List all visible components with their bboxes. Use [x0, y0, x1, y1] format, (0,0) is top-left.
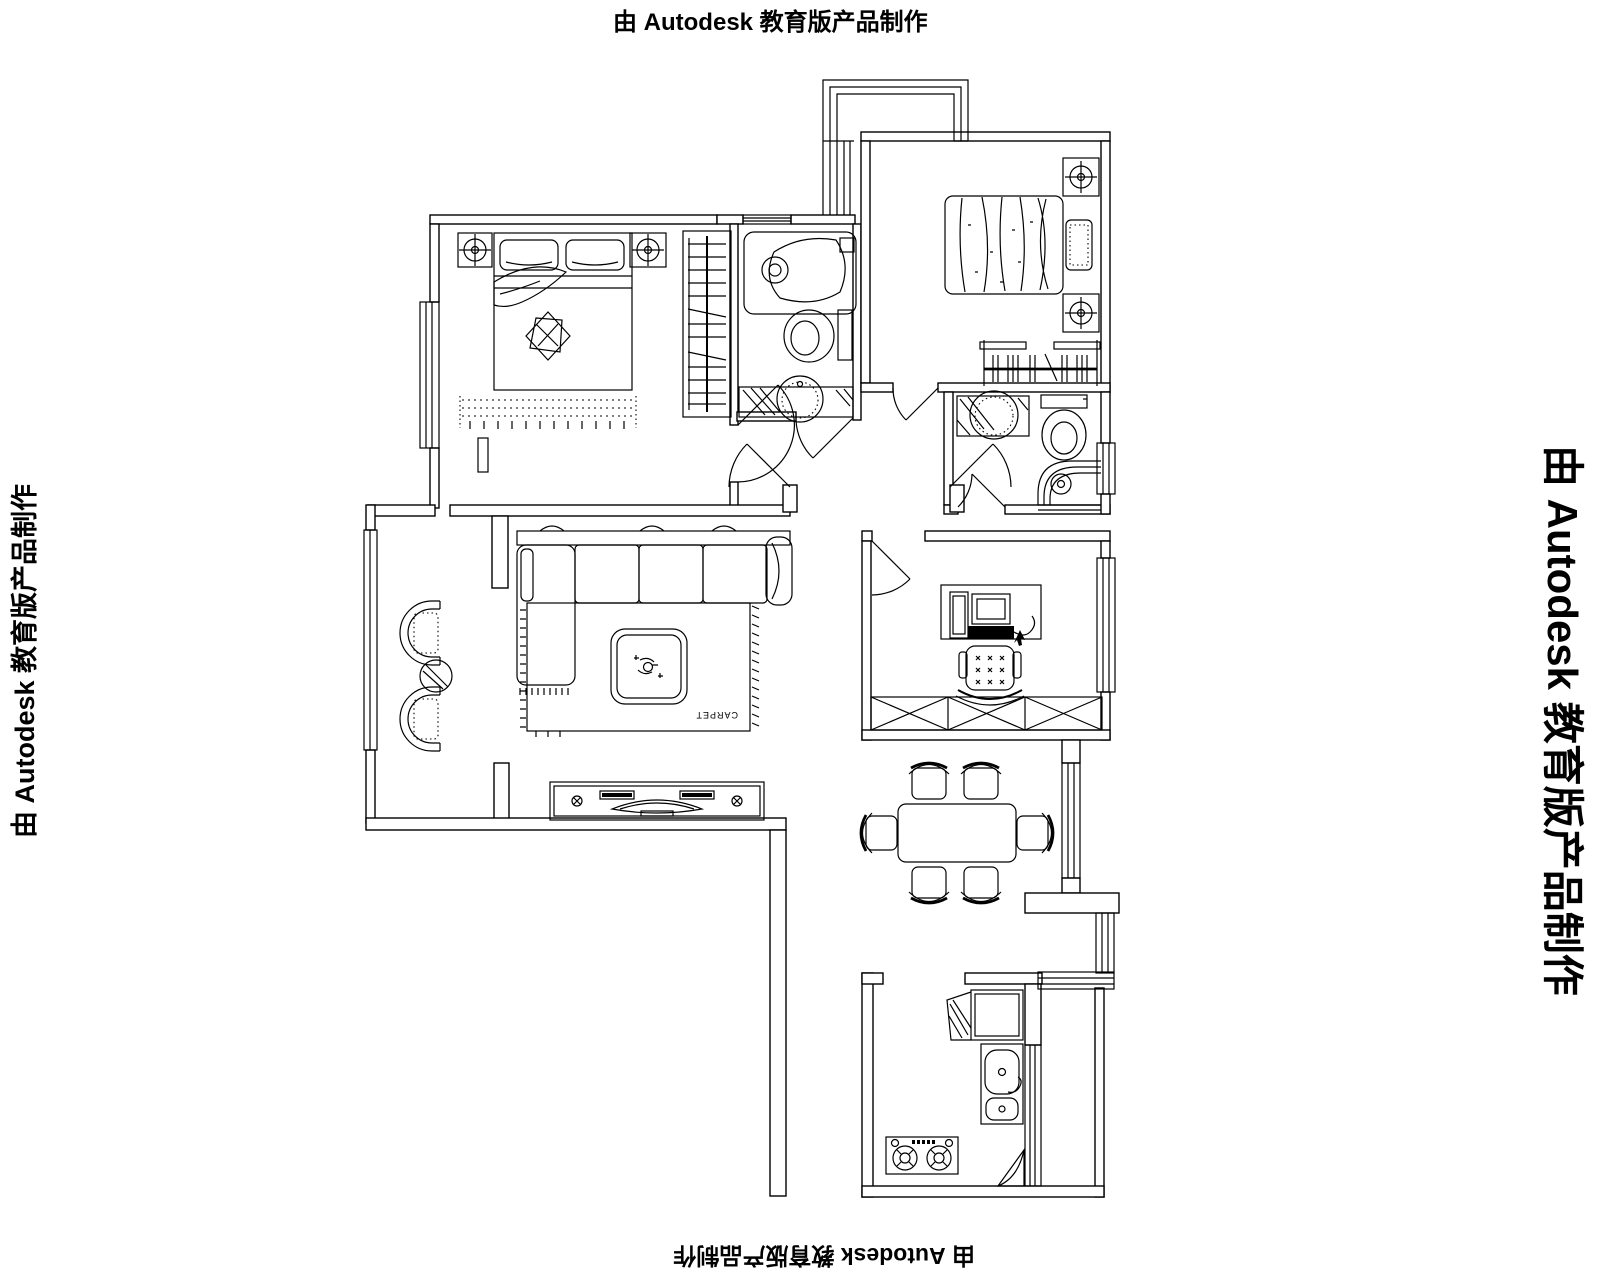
window-kitchen-right	[1025, 1045, 1041, 1186]
watermark-right: 由 Autodesk 教育版产品制作	[1539, 445, 1586, 996]
toilet	[784, 310, 852, 362]
dining-chair	[909, 867, 949, 903]
kitchen	[886, 990, 1023, 1174]
door-bathroom	[796, 418, 853, 458]
dining-chair	[861, 813, 897, 853]
dining-chair	[961, 763, 1001, 799]
sofa	[517, 526, 792, 695]
refrigerator	[947, 990, 1023, 1040]
kitchen-corner-unit	[998, 1150, 1024, 1186]
dining-table	[898, 804, 1016, 862]
dining-chair	[1017, 813, 1053, 853]
basin-counter2	[957, 391, 1029, 439]
door-master-bedroom	[738, 385, 794, 482]
bathtub	[744, 232, 856, 314]
lounge-area	[400, 601, 452, 751]
double-bed	[494, 233, 632, 390]
second-bedroom	[945, 158, 1100, 386]
carpet-label: CARPET	[695, 710, 738, 720]
window-study-right	[1097, 558, 1115, 692]
watermark-top: 由 Autodesk 教育版产品制作	[613, 8, 928, 36]
carpet-rug: CARPET	[520, 603, 759, 737]
door-living-left-leaf	[729, 444, 790, 487]
dining-chair	[961, 867, 1001, 903]
watermark-bottom: 由 Autodesk 教育版产品制作	[673, 1243, 975, 1269]
living-room: CARPET	[400, 526, 792, 820]
wardrobe	[683, 231, 731, 417]
window-ensuite-right	[1097, 443, 1115, 494]
desk	[941, 585, 1041, 646]
watermark-left: 由 Autodesk 教育版产品制作	[9, 484, 40, 838]
dining-room	[861, 763, 1053, 903]
walls	[366, 132, 1119, 1197]
window-bathroom-top	[743, 215, 791, 224]
coffee-table	[611, 629, 687, 704]
master-bedroom	[458, 231, 731, 472]
bedroom-rug	[460, 396, 636, 472]
window-lounge-left	[364, 530, 377, 750]
armchair-top	[400, 601, 440, 665]
study-chair	[956, 646, 1024, 705]
window-master-bedroom	[420, 302, 439, 448]
corner-bathtub	[1038, 461, 1101, 510]
window-dining-right	[1062, 763, 1080, 878]
toilet2	[1041, 395, 1087, 460]
ensuite-bathroom	[957, 391, 1101, 510]
dining-chair	[909, 763, 949, 799]
armchair-bottom	[400, 687, 440, 751]
window-corridor-vertical	[1096, 913, 1114, 973]
nightstand-left	[458, 233, 492, 267]
floor-plan-drawing: 由 Autodesk 教育版产品制作 由 Autodesk 教育版产品制作 由 …	[0, 0, 1600, 1280]
door-study	[872, 541, 910, 595]
door-living-right-leaf	[950, 444, 1011, 487]
study-cabinet	[871, 697, 1102, 730]
bed2	[945, 196, 1092, 294]
stove	[886, 1137, 958, 1174]
shaft	[823, 80, 968, 215]
watermark-group: 由 Autodesk 教育版产品制作 由 Autodesk 教育版产品制作 由 …	[9, 8, 1586, 1269]
main-bathroom	[739, 232, 856, 422]
nightstand-top	[1063, 158, 1099, 196]
door-second-bedroom	[893, 388, 938, 420]
nightstand-right	[630, 233, 666, 267]
clothes-rail	[980, 340, 1100, 386]
double-sink	[981, 1044, 1023, 1124]
nightstand-bottom	[1063, 294, 1099, 332]
door-ensuite	[958, 474, 1005, 507]
study	[871, 585, 1102, 730]
floor-plan-page: 由 Autodesk 教育版产品制作 由 Autodesk 教育版产品制作 由 …	[0, 0, 1600, 1280]
tv-cabinet	[550, 782, 764, 820]
window-corridor-horizontal	[1038, 972, 1114, 989]
